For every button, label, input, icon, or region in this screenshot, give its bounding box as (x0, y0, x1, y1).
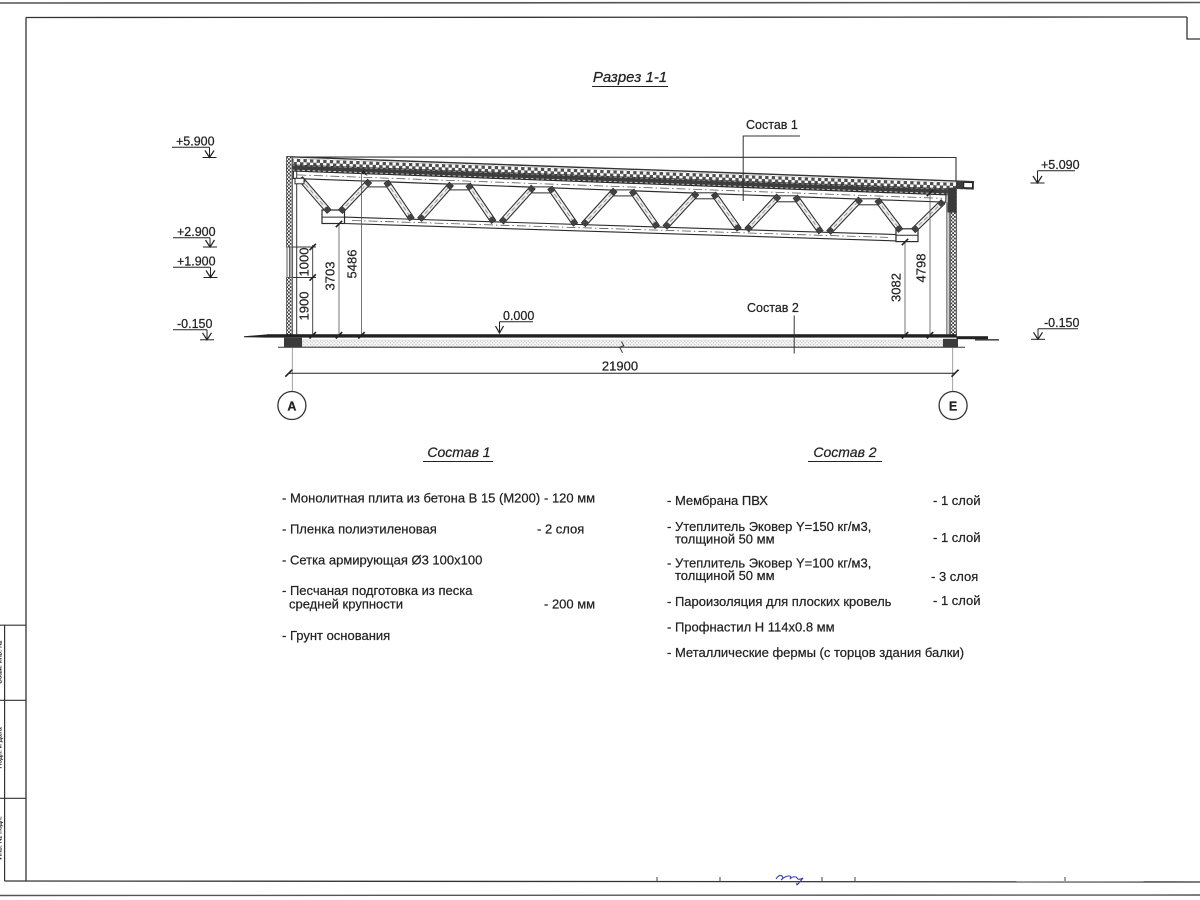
svg-text:1000: 1000 (297, 248, 312, 277)
svg-text:- 200 мм: - 200 мм (544, 597, 595, 612)
svg-text:Состав 1: Состав 1 (746, 118, 798, 132)
svg-text:- Пленка полиэтиленовая: - Пленка полиэтиленовая (282, 522, 437, 537)
svg-text:- 1 слой: - 1 слой (933, 530, 981, 545)
svg-text:толщиной 50 мм: толщиной 50 мм (675, 568, 775, 583)
svg-text:- Песчаная подготовка из песка: - Песчаная подготовка из песка (282, 583, 473, 598)
svg-text:- Грунт основания: - Грунт основания (282, 628, 390, 643)
svg-text:4798: 4798 (914, 254, 929, 283)
svg-text:- Металлические фермы (с торцо: - Металлические фермы (с торцов здания б… (667, 645, 964, 660)
svg-text:- Профнастил Н 114х0.8 мм: - Профнастил Н 114х0.8 мм (667, 620, 835, 635)
svg-text:21900: 21900 (602, 359, 638, 374)
svg-text:5486: 5486 (345, 250, 360, 279)
svg-text:- Монолитная плита из бетона В: - Монолитная плита из бетона В 15 (М200) (282, 490, 540, 505)
svg-text:Разрез 1-1: Разрез 1-1 (593, 69, 667, 86)
svg-text:Подп. и дата: Подп. и дата (0, 727, 4, 768)
svg-text:Состав 2: Состав 2 (747, 301, 799, 315)
svg-text:-0.150: -0.150 (177, 317, 212, 331)
svg-text:- 1 слой: - 1 слой (933, 593, 981, 608)
svg-text:3703: 3703 (323, 262, 338, 291)
svg-text:+5.900: +5.900 (176, 135, 215, 149)
svg-text:- 120 мм: - 120 мм (544, 490, 595, 505)
svg-text:-0.150: -0.150 (1044, 316, 1079, 330)
svg-text:1900: 1900 (297, 292, 312, 321)
svg-text:3082: 3082 (889, 273, 904, 302)
svg-text:Е: Е (949, 399, 957, 413)
svg-text:- 1 слой: - 1 слой (933, 493, 981, 508)
svg-text:- Мембрана ПВХ: - Мембрана ПВХ (667, 493, 768, 508)
svg-text:Взам. инв. №: Взам. инв. № (0, 640, 4, 683)
svg-text:0.000: 0.000 (503, 309, 534, 323)
svg-text:+1.900: +1.900 (177, 255, 216, 269)
svg-text:Состав 2: Состав 2 (813, 444, 876, 460)
svg-text:- Пароизоляция для плоских кро: - Пароизоляция для плоских кровель (667, 594, 892, 609)
svg-text:- 2 слоя: - 2 слоя (537, 522, 584, 537)
svg-text:А: А (287, 399, 296, 413)
svg-text:- 3 слоя: - 3 слоя (931, 569, 978, 584)
svg-text:средней крупности: средней крупности (289, 597, 403, 612)
svg-text:+2.900: +2.900 (177, 225, 216, 239)
svg-text:+5.090: +5.090 (1041, 158, 1080, 172)
svg-text:Инв. № подл.: Инв. № подл. (0, 816, 4, 860)
svg-text:Состав 1: Состав 1 (427, 444, 490, 460)
svg-text:толщиной 50 мм: толщиной 50 мм (675, 532, 775, 547)
svg-text:- Сетка армирующая Ø3 100х100: - Сетка армирующая Ø3 100х100 (282, 553, 482, 568)
